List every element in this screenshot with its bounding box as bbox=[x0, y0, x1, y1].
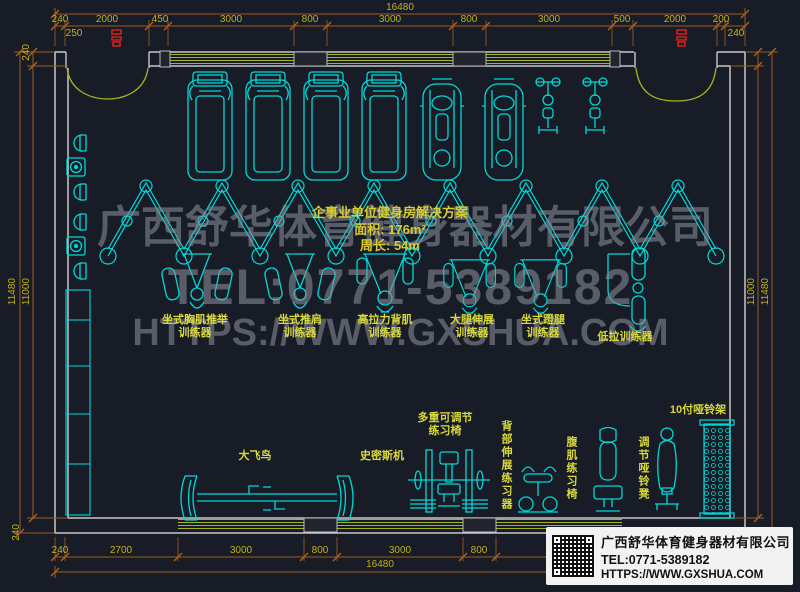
dim-top-seg: 3000 bbox=[379, 15, 401, 25]
label-lat-pulldown: 高拉力背肌训练器 bbox=[358, 314, 413, 340]
wall-seat-2 bbox=[67, 158, 85, 176]
label-adjustable-bench: 多重可调节练习椅 bbox=[418, 412, 473, 438]
dim-top-sub-right: 240 bbox=[728, 29, 745, 39]
treadmill-4 bbox=[362, 72, 406, 180]
dim-bottom-corner: 240 bbox=[12, 524, 22, 541]
cable-fly-machine bbox=[181, 476, 353, 520]
wall-seat-3 bbox=[74, 184, 86, 200]
dim-top-seg: 2000 bbox=[664, 15, 686, 25]
wall-seat-5 bbox=[67, 237, 85, 255]
dim-right-inner: 11000 bbox=[747, 278, 757, 305]
adjustable-dumbbell-bench bbox=[655, 428, 679, 510]
label-smith-machine: 史密斯机 bbox=[360, 450, 404, 463]
wall-cabinet bbox=[66, 290, 90, 515]
label-cable-fly: 大飞鸟 bbox=[239, 450, 272, 463]
qr-code bbox=[552, 535, 594, 577]
door-opening-left bbox=[66, 50, 149, 68]
qr-finder-icon bbox=[552, 567, 562, 577]
red-door-marker-right bbox=[677, 30, 686, 46]
dim-top-seg: 800 bbox=[461, 15, 478, 25]
label-chest-press: 坐式胸肌推举训练器 bbox=[162, 314, 228, 340]
dim-bottom-seg: 240 bbox=[52, 546, 69, 556]
door-opening-right bbox=[634, 50, 717, 68]
label-adjustable-dumbbell-bench: 调节哑铃凳 bbox=[636, 436, 649, 501]
floor-plan-canvas: 广西舒华体育健身器材有限公司 TEL:0771-5389182 HTTPS://… bbox=[0, 0, 800, 592]
back-extension-machine bbox=[518, 467, 558, 512]
wall-seat-1 bbox=[74, 135, 86, 151]
dim-bottom-seg: 800 bbox=[312, 546, 329, 556]
label-leg-extension: 大腿伸展训练器 bbox=[450, 314, 494, 340]
dim-top-seg: 3000 bbox=[538, 15, 560, 25]
label-back-extension: 背部伸展练习器 bbox=[499, 420, 512, 511]
dim-top-seg: 2000 bbox=[96, 15, 118, 25]
wall-seat-6 bbox=[74, 263, 86, 279]
label-shoulder-press: 坐式推肩训练器 bbox=[278, 314, 322, 340]
dim-top-seg: 500 bbox=[614, 15, 631, 25]
window-band-top bbox=[168, 55, 612, 64]
smith-machine bbox=[408, 450, 490, 512]
treadmill-1 bbox=[188, 72, 232, 180]
card-website: HTTPS://WWW.GXSHUA.COM bbox=[601, 569, 790, 581]
plan-perimeter: 周长: 54m bbox=[360, 235, 420, 254]
elliptical-1 bbox=[420, 79, 464, 180]
dim-bottom-overall: 16480 bbox=[366, 560, 394, 570]
label-low-row: 低拉训练器 bbox=[598, 331, 653, 344]
exercise-bike-1 bbox=[536, 78, 560, 134]
label-leg-press: 坐式蹬腿训练器 bbox=[521, 314, 565, 340]
dim-top-seg: 240 bbox=[52, 15, 69, 25]
dim-top-seg: 3000 bbox=[220, 15, 242, 25]
dim-left-outer: 11480 bbox=[8, 278, 18, 305]
dim-left-inner: 11000 bbox=[22, 278, 32, 305]
exercise-bike-2 bbox=[583, 78, 607, 134]
red-door-marker-left bbox=[112, 30, 121, 46]
pillars-top bbox=[160, 51, 620, 67]
label-ab-bench: 腹肌练习椅 bbox=[564, 436, 577, 501]
qr-finder-icon bbox=[552, 535, 562, 545]
elliptical-2 bbox=[482, 79, 526, 180]
dim-top-seg: 450 bbox=[152, 15, 169, 25]
dim-top-overall: 16480 bbox=[386, 3, 414, 13]
label-dumbbell-rack: 10付哑铃架 bbox=[670, 404, 726, 417]
dim-bottom-seg: 3000 bbox=[230, 546, 252, 556]
dim-bottom-seg: 2700 bbox=[110, 546, 132, 556]
dim-top-sub-left: 250 bbox=[66, 29, 83, 39]
dim-top-seg: 200 bbox=[713, 15, 730, 25]
treadmill-3 bbox=[304, 72, 348, 180]
company-info-card: 广西舒华体育健身器材有限公司 TEL:0771-5389182 HTTPS://… bbox=[546, 527, 793, 585]
card-company-name: 广西舒华体育健身器材有限公司 bbox=[601, 532, 790, 551]
dim-bottom-seg: 800 bbox=[471, 546, 488, 556]
ab-bench bbox=[594, 428, 622, 512]
dim-right-outer: 11480 bbox=[761, 278, 771, 305]
dim-top-seg: 800 bbox=[302, 15, 319, 25]
treadmill-2 bbox=[246, 72, 290, 180]
dim-bottom-seg: 3000 bbox=[389, 546, 411, 556]
card-tel: TEL:0771-5389182 bbox=[601, 553, 790, 567]
dumbbell-rack bbox=[700, 420, 734, 518]
dim-left-top: 240 bbox=[22, 44, 32, 61]
qr-finder-icon bbox=[584, 535, 594, 545]
watermark-tel: TEL:0771-5389182 bbox=[128, 262, 673, 312]
